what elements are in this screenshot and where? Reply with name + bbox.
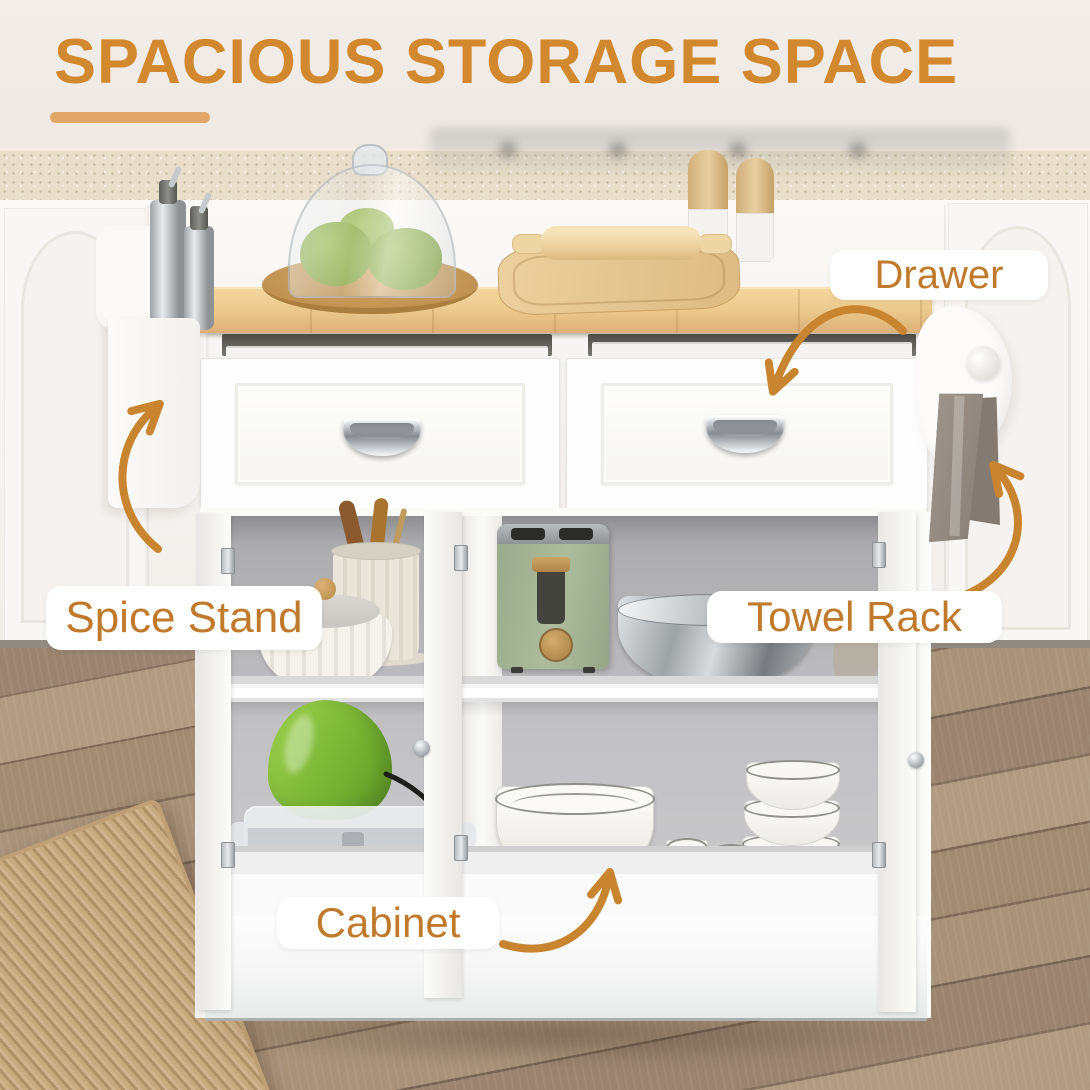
towel-rack-knob <box>966 346 1000 380</box>
cabinet-door-right <box>878 512 916 1012</box>
stove-knob-icon <box>730 142 746 158</box>
door-hinge <box>872 542 886 568</box>
toaster-dial <box>539 628 573 662</box>
callout-label-cabinet: Cabinet <box>277 897 499 949</box>
door-hinge <box>454 835 468 861</box>
stove-knob-icon <box>500 142 516 158</box>
cabinet-top-rail <box>200 508 926 516</box>
mill-top <box>688 150 728 211</box>
toaster-top <box>497 524 609 544</box>
door-hinge <box>221 548 235 574</box>
toaster-slot <box>559 528 593 540</box>
drawer-gap-right <box>588 334 916 356</box>
door-hinge <box>454 545 468 571</box>
door-knob <box>908 752 924 768</box>
door-knob <box>414 740 430 756</box>
rolling-pin <box>540 226 702 260</box>
salt-mill <box>736 158 774 262</box>
door-hinge <box>872 842 886 868</box>
oil-bottle <box>150 200 186 330</box>
toaster-slot <box>511 528 545 540</box>
toaster-wood-tab <box>532 557 570 572</box>
drawer-box-edge <box>592 342 912 358</box>
toaster-foot <box>583 667 595 673</box>
product-infographic: Drawer Spice Stand Towel Rack Cabinet SP… <box>0 0 1090 1090</box>
mill-base <box>736 213 774 262</box>
callout-label-text: Cabinet <box>316 899 461 947</box>
rolling-pin-handle <box>698 234 732 254</box>
spice-stand-panel <box>108 318 200 508</box>
mill-top <box>736 158 774 215</box>
stove-knob-icon <box>850 142 866 158</box>
oil-bottle <box>184 226 214 330</box>
stove-knob-icon <box>610 142 626 158</box>
callout-label-text: Spice Stand <box>65 593 302 643</box>
callout-label-towel-rack: Towel Rack <box>707 591 1002 643</box>
callout-label-spice-stand: Spice Stand <box>46 586 322 650</box>
page-title: SPACIOUS STORAGE SPACE <box>54 26 1054 98</box>
drawer-box-edge <box>226 346 548 358</box>
title-underline <box>50 112 210 123</box>
door-hinge <box>221 842 235 868</box>
middle-shelf <box>227 676 899 702</box>
drawer-gap-left <box>222 334 552 356</box>
toaster <box>497 524 609 669</box>
callout-label-drawer: Drawer <box>830 250 1048 300</box>
toaster-foot <box>511 667 523 673</box>
callout-label-text: Towel Rack <box>747 593 962 641</box>
callout-label-text: Drawer <box>875 253 1004 298</box>
